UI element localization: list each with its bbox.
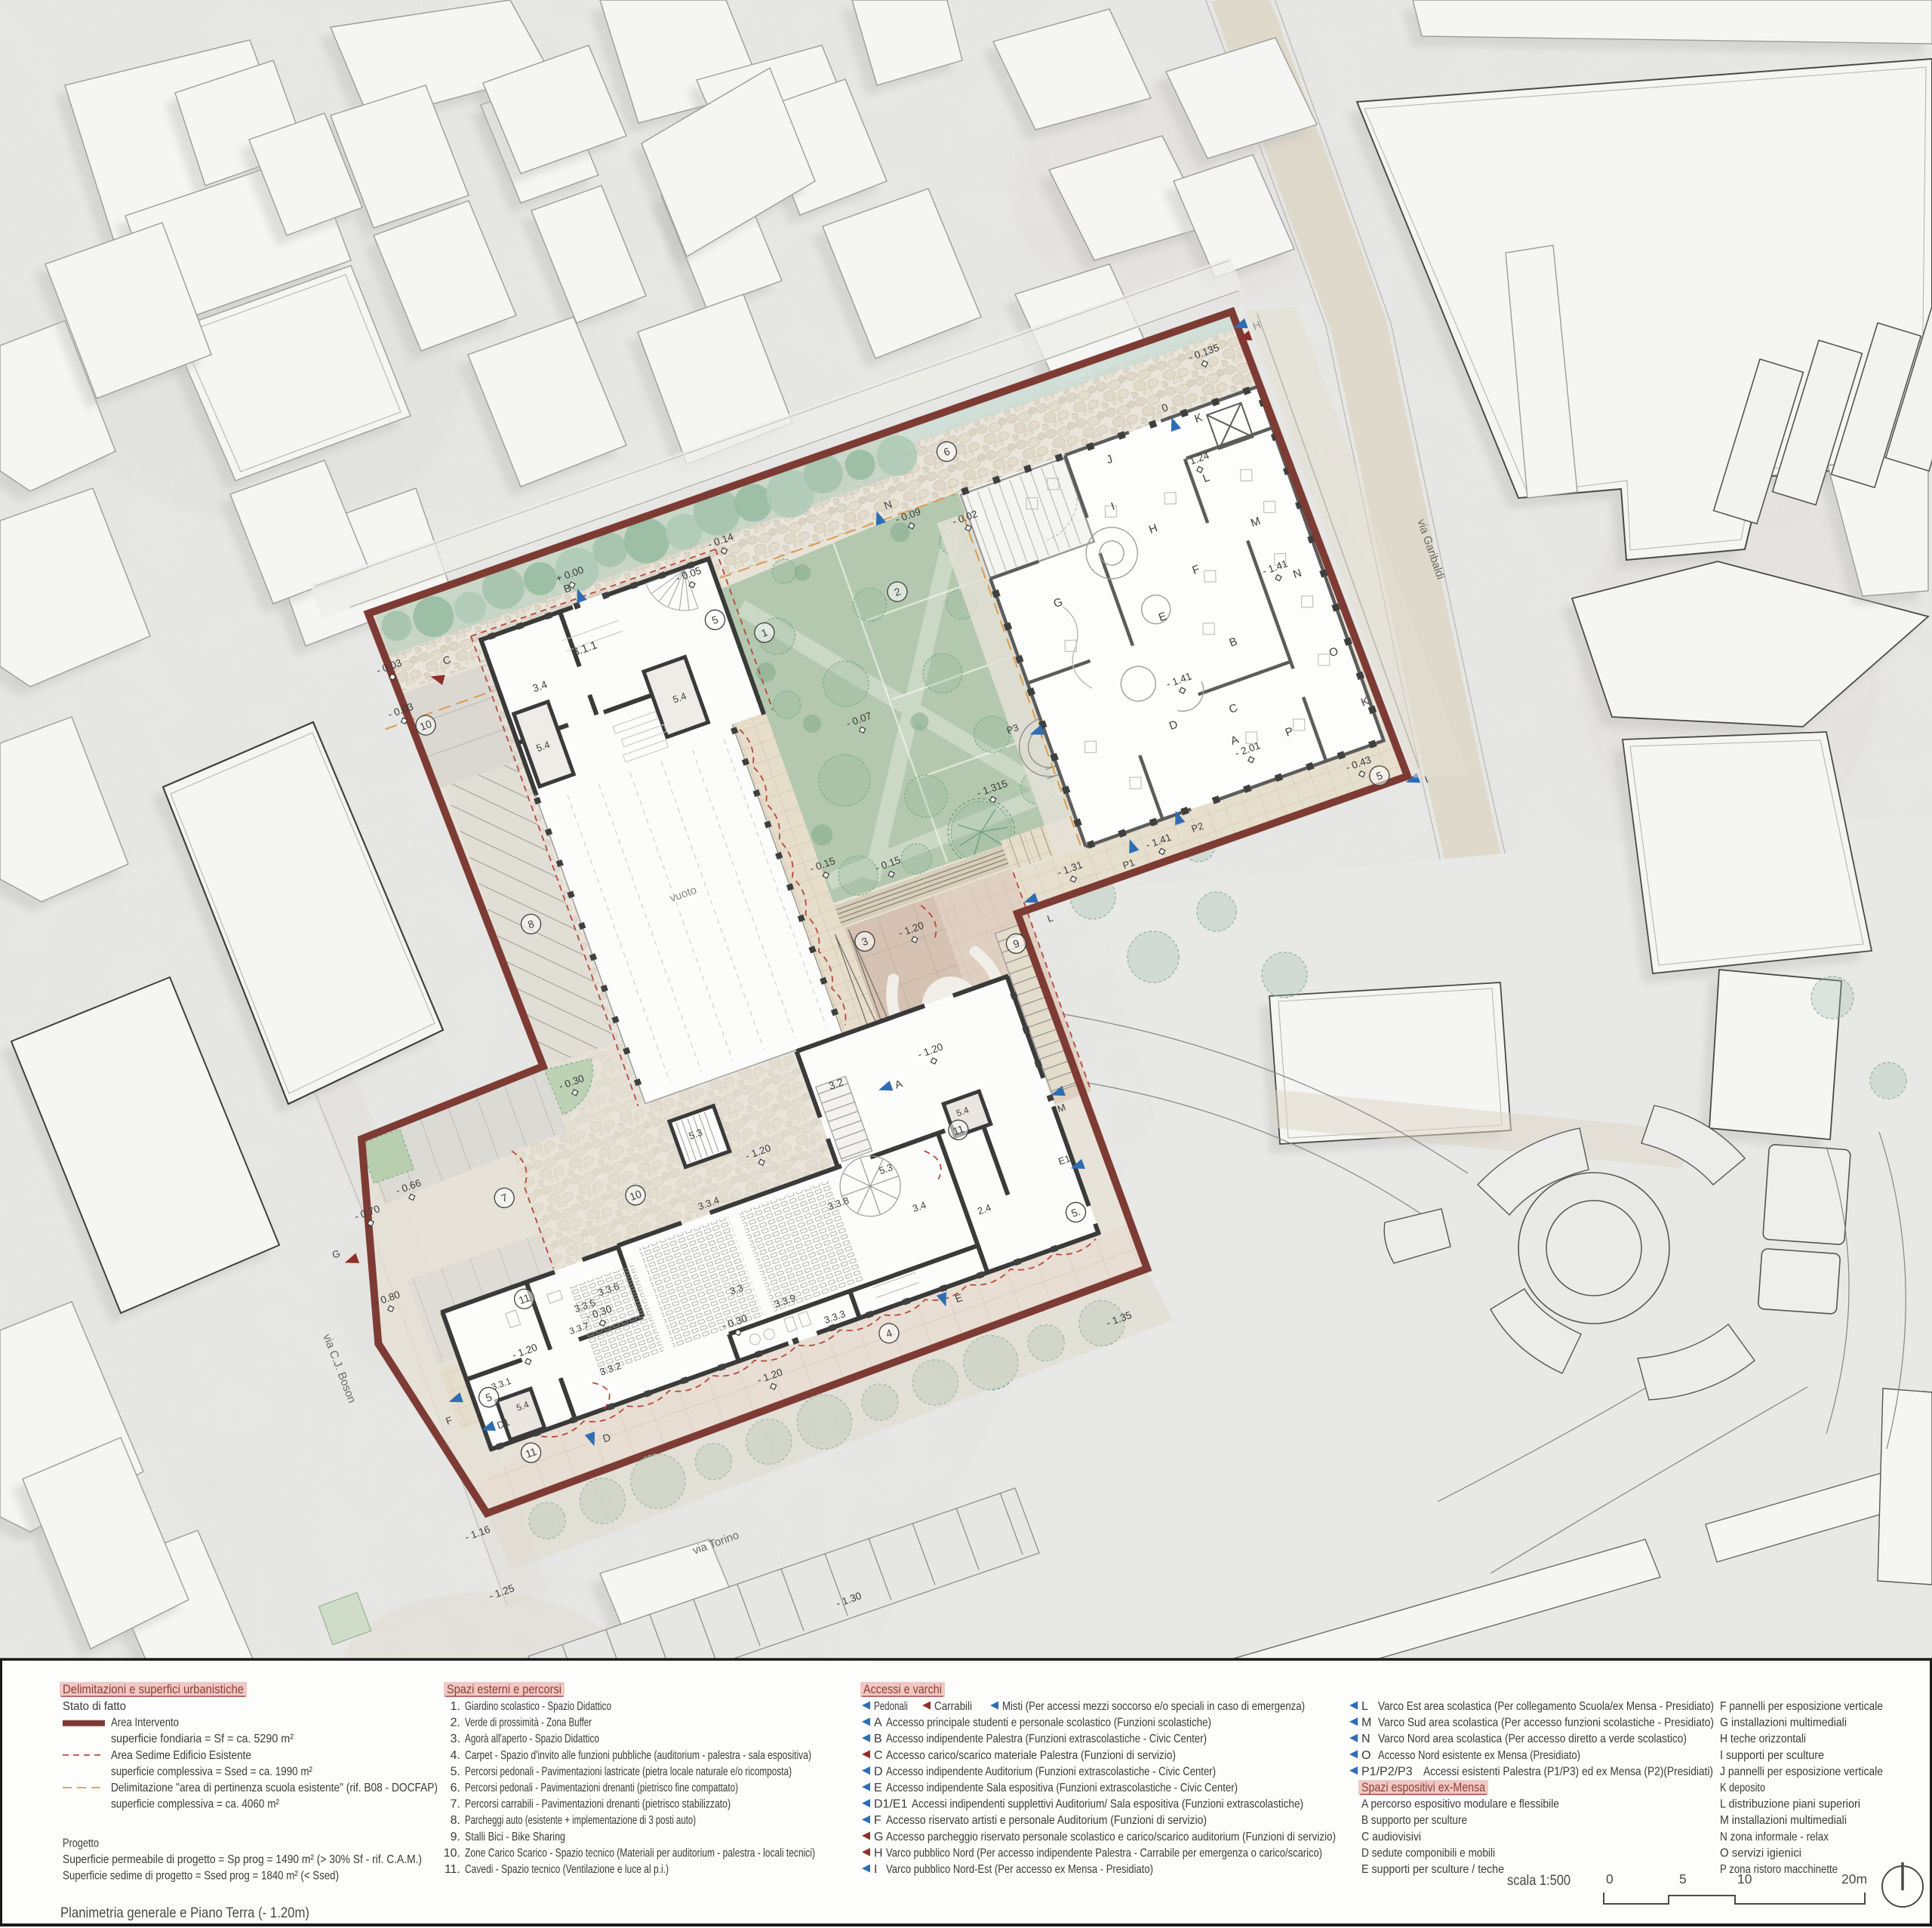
svg-text:H: H	[874, 1847, 883, 1859]
svg-text:Cavedi - Spazio tecnico (Venti: Cavedi - Spazio tecnico (Ventilazione e …	[465, 1863, 669, 1876]
svg-text:superficie fondiaria = Sf = ca: superficie fondiaria = Sf = ca. 5290 m²	[111, 1733, 294, 1745]
svg-text:scala 1:500: scala 1:500	[1507, 1872, 1571, 1889]
svg-text:O servizi igienici: O servizi igienici	[1720, 1847, 1801, 1859]
svg-text:Spazi espositivi ex-Mensa: Spazi espositivi ex-Mensa	[1361, 1781, 1486, 1794]
svg-text:11.: 11.	[445, 1863, 460, 1876]
svg-text:I supporti per sculture: I supporti per sculture	[1720, 1749, 1824, 1762]
svg-text:Superficie permeabile di proge: Superficie permeabile di progetto = Sp p…	[63, 1853, 422, 1866]
svg-text:F pannelli per esposizione ver: F pannelli per esposizione verticale	[1720, 1700, 1883, 1713]
svg-text:Delimitazione "area di pertine: Delimitazione "area di pertinenza scuola…	[111, 1782, 438, 1794]
svg-text:M installazioni multimediali: M installazioni multimediali	[1720, 1814, 1847, 1827]
svg-text:6.: 6.	[451, 1782, 460, 1794]
svg-text:Percorsi pedonali - Pavimentaz: Percorsi pedonali - Pavimentazioni drena…	[465, 1782, 738, 1794]
svg-text:Stalli Bici - Bike Sharing: Stalli Bici - Bike Sharing	[465, 1831, 565, 1843]
svg-text:Accessi e varchi: Accessi e varchi	[863, 1683, 942, 1696]
svg-text:Percorsi pedonali - Pavimentaz: Percorsi pedonali - Pavimentazioni lastr…	[465, 1765, 792, 1778]
svg-text:Carpet - Spazio d'invito alle: Carpet - Spazio d'invito alle funzioni p…	[465, 1749, 811, 1762]
svg-text:J pannelli per esposizione ver: J pannelli per esposizione verticale	[1720, 1765, 1883, 1778]
svg-text:A percorso espositivo modulare: A percorso espositivo modulare e flessib…	[1361, 1798, 1559, 1811]
svg-text:10: 10	[1737, 1871, 1752, 1886]
svg-text:Accesso principale studenti e: Accesso principale studenti e personale …	[886, 1717, 1211, 1730]
svg-text:superficie complessiva = ca. 4: superficie complessiva = ca. 4060 m²	[111, 1798, 280, 1811]
svg-text:Accesso carico/scarico materia: Accesso carico/scarico materiale Palestr…	[886, 1749, 1176, 1762]
svg-text:Accesso Nord esistente ex Mens: Accesso Nord esistente ex Mensa (Presidi…	[1378, 1749, 1580, 1762]
svg-text:K deposito: K deposito	[1720, 1782, 1765, 1794]
svg-text:Parcheggi auto (esistente + im: Parcheggi auto (esistente + implementazi…	[465, 1814, 696, 1827]
svg-text:Pedonali: Pedonali	[874, 1700, 908, 1713]
svg-text:B supporto per sculture: B supporto per sculture	[1361, 1814, 1467, 1827]
svg-text:Carrabili: Carrabili	[934, 1700, 972, 1713]
svg-text:Accesso indipendente Palestra: Accesso indipendente Palestra (Funzioni …	[886, 1733, 1207, 1745]
svg-text:5: 5	[1679, 1871, 1687, 1886]
svg-text:G installazioni multimediali: G installazioni multimediali	[1720, 1717, 1847, 1730]
svg-text:Verde di prossimità - Zona Buf: Verde di prossimità - Zona Buffer	[465, 1717, 592, 1730]
svg-text:L distribuzione piani superior: L distribuzione piani superiori	[1720, 1798, 1860, 1811]
svg-text:A: A	[874, 1717, 882, 1730]
svg-text:2.: 2.	[451, 1717, 460, 1730]
svg-text:E: E	[874, 1782, 882, 1794]
svg-text:superficie complessiva = Ssed: superficie complessiva = Ssed = ca. 1990…	[111, 1765, 313, 1778]
svg-text:Accesso indipendente Auditoriu: Accesso indipendente Auditorium (Funzion…	[886, 1765, 1216, 1778]
svg-text:N: N	[1361, 1733, 1371, 1745]
svg-text:P1/P2/P3: P1/P2/P3	[1361, 1765, 1413, 1778]
svg-text:Planimetria generale e Piano T: Planimetria generale e Piano Terra (- 1.…	[60, 1905, 309, 1921]
svg-text:Area Intervento: Area Intervento	[111, 1717, 179, 1730]
svg-text:Varco Est area scolastica (Per: Varco Est area scolastica (Per collegame…	[1378, 1700, 1714, 1713]
svg-text:Superficie sedime di progetto: Superficie sedime di progetto = Ssed pro…	[63, 1870, 339, 1883]
svg-text:D: D	[874, 1765, 883, 1778]
svg-text:Accesso riservato artisti e pe: Accesso riservato artisti e personale Au…	[886, 1814, 1207, 1827]
svg-text:9.: 9.	[451, 1831, 460, 1843]
svg-text:Misti (Per accessi mezzi socco: Misti (Per accessi mezzi soccorso e/o sp…	[1002, 1700, 1305, 1713]
svg-text:L: L	[1361, 1700, 1368, 1713]
svg-text:Progetto: Progetto	[63, 1837, 99, 1850]
svg-text:Accessi indipendenti suppletti: Accessi indipendenti supplettivi Auditor…	[912, 1798, 1303, 1811]
svg-text:10.: 10.	[444, 1847, 460, 1859]
svg-text:E supporti per sculture / tech: E supporti per sculture / teche	[1361, 1863, 1504, 1876]
svg-text:5.: 5.	[451, 1765, 460, 1778]
svg-text:Giardino scolastico - Spazio D: Giardino scolastico - Spazio Didattico	[465, 1700, 611, 1713]
svg-text:Varco pubblico Nord (Per acces: Varco pubblico Nord (Per accesso indipen…	[886, 1847, 1322, 1859]
svg-text:C: C	[874, 1749, 883, 1762]
svg-text:O: O	[1361, 1749, 1371, 1762]
svg-text:H teche orizzontali: H teche orizzontali	[1720, 1733, 1806, 1745]
svg-text:B: B	[874, 1733, 882, 1745]
svg-text:7.: 7.	[451, 1798, 460, 1811]
svg-text:3.: 3.	[451, 1733, 460, 1745]
svg-text:20m: 20m	[1841, 1871, 1867, 1886]
svg-text:Accesso indipendente Sala espo: Accesso indipendente Sala espositiva (Fu…	[886, 1782, 1238, 1794]
svg-text:Stato di fatto: Stato di fatto	[63, 1700, 126, 1713]
svg-text:Varco pubblico Nord-Est (Per: Varco pubblico Nord-Est (Per accesso ex …	[886, 1863, 1153, 1876]
svg-text:Varco Sud area scolastica (Per: Varco Sud area scolastica (Per accesso f…	[1378, 1717, 1714, 1730]
svg-text:Zone Carico Scarico - Spazio t: Zone Carico Scarico - Spazio tecnico (Ma…	[465, 1847, 815, 1859]
svg-text:1.: 1.	[451, 1700, 460, 1713]
svg-text:Spazi esterni e percorsi: Spazi esterni e percorsi	[447, 1683, 561, 1696]
svg-text:Accesso parcheggio riservato p: Accesso parcheggio riservato personale s…	[886, 1831, 1336, 1843]
svg-text:Agorà all'aperto - Spazio Dida: Agorà all'aperto - Spazio Didattico	[465, 1733, 599, 1745]
svg-text:Accessi esistenti Palestra (P1: Accessi esistenti Palestra (P1/P3) ed ex…	[1423, 1765, 1713, 1778]
svg-text:8.: 8.	[451, 1814, 460, 1827]
svg-text:0: 0	[1606, 1871, 1614, 1886]
svg-text:M: M	[1361, 1717, 1371, 1730]
svg-text:4.: 4.	[451, 1749, 460, 1762]
svg-text:Percorsi carrabili - Pavimenta: Percorsi carrabili - Pavimentazioni dren…	[465, 1798, 731, 1811]
svg-text:Varco Nord area scolastica (Pe: Varco Nord area scolastica (Per accesso …	[1378, 1733, 1687, 1745]
svg-text:D1/E1: D1/E1	[874, 1798, 908, 1811]
svg-text:F: F	[874, 1814, 881, 1827]
svg-text:I: I	[874, 1863, 877, 1876]
svg-text:D sedute componibili e mobili: D sedute componibili e mobili	[1361, 1847, 1495, 1859]
svg-text:Area Sedime Edificio Esistente: Area Sedime Edificio Esistente	[111, 1749, 251, 1762]
svg-text:G: G	[874, 1831, 883, 1843]
svg-text:N zona informale - relax: N zona informale - relax	[1720, 1831, 1829, 1843]
svg-text:Delimitazioni e superfici urba: Delimitazioni e superfici urbanistiche	[63, 1683, 244, 1696]
svg-text:C audiovisivi: C audiovisivi	[1361, 1831, 1421, 1843]
